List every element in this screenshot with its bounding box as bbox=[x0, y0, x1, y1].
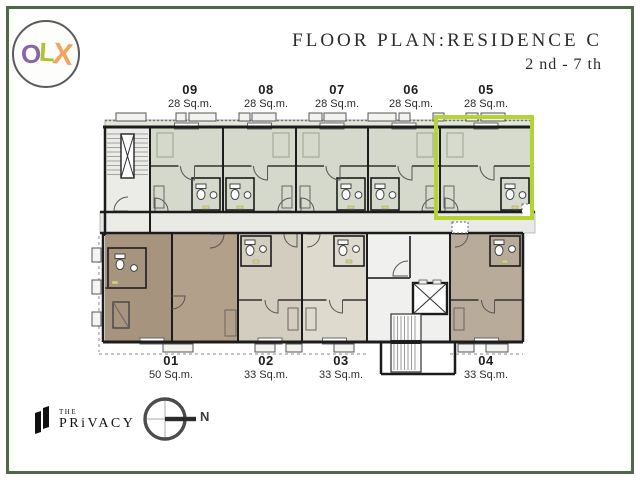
unit-03-label: 0333 Sq.m. bbox=[301, 354, 381, 382]
olx-letter-x: X bbox=[51, 37, 72, 73]
unit-07-label: 0728 Sq.m. bbox=[297, 83, 377, 111]
unit-05-label: 0528 Sq.m. bbox=[446, 83, 526, 111]
unit-area: 28 Sq.m. bbox=[226, 98, 306, 111]
unit-area: 33 Sq.m. bbox=[226, 369, 306, 382]
unit-08-label: 0828 Sq.m. bbox=[226, 83, 306, 111]
unit-area: 28 Sq.m. bbox=[150, 98, 230, 111]
unit-area: 28 Sq.m. bbox=[446, 98, 526, 111]
brand-word-privacy: PRiVACY bbox=[59, 416, 135, 432]
page-title: FLOOR PLAN:RESIDENCE C bbox=[292, 30, 602, 52]
brand-word-the: THE bbox=[59, 408, 135, 416]
unit-number: 01 bbox=[131, 354, 211, 368]
compass-north-label: N bbox=[200, 409, 209, 424]
privacy-building-icon bbox=[34, 406, 52, 434]
unit-area: 33 Sq.m. bbox=[301, 369, 381, 382]
unit-02-label: 0233 Sq.m. bbox=[226, 354, 306, 382]
unit-number: 08 bbox=[226, 83, 306, 97]
unit-number: 04 bbox=[446, 354, 526, 368]
unit-01-label: 0150 Sq.m. bbox=[131, 354, 211, 382]
floor-range-subtitle: 2 nd - 7 th bbox=[292, 56, 602, 74]
unit-number: 07 bbox=[297, 83, 377, 97]
unit-area: 50 Sq.m. bbox=[131, 369, 211, 382]
unit-04-label: 0433 Sq.m. bbox=[446, 354, 526, 382]
unit-number: 06 bbox=[371, 83, 451, 97]
unit-area: 33 Sq.m. bbox=[446, 369, 526, 382]
olx-watermark-logo: O L X bbox=[12, 20, 80, 88]
unit-number: 03 bbox=[301, 354, 381, 368]
unit-area: 28 Sq.m. bbox=[297, 98, 377, 111]
unit-number: 05 bbox=[446, 83, 526, 97]
unit-06-label: 0628 Sq.m. bbox=[371, 83, 451, 111]
unit-09-label: 0928 Sq.m. bbox=[150, 83, 230, 111]
title-block: FLOOR PLAN:RESIDENCE C 2 nd - 7 th bbox=[292, 30, 602, 74]
unit-number: 02 bbox=[226, 354, 306, 368]
unit-area: 28 Sq.m. bbox=[371, 98, 451, 111]
the-privacy-logo: THE PRiVACY bbox=[34, 406, 135, 434]
compass-icon: N bbox=[138, 392, 230, 452]
compass-rose bbox=[138, 392, 230, 452]
unit-number: 09 bbox=[150, 83, 230, 97]
